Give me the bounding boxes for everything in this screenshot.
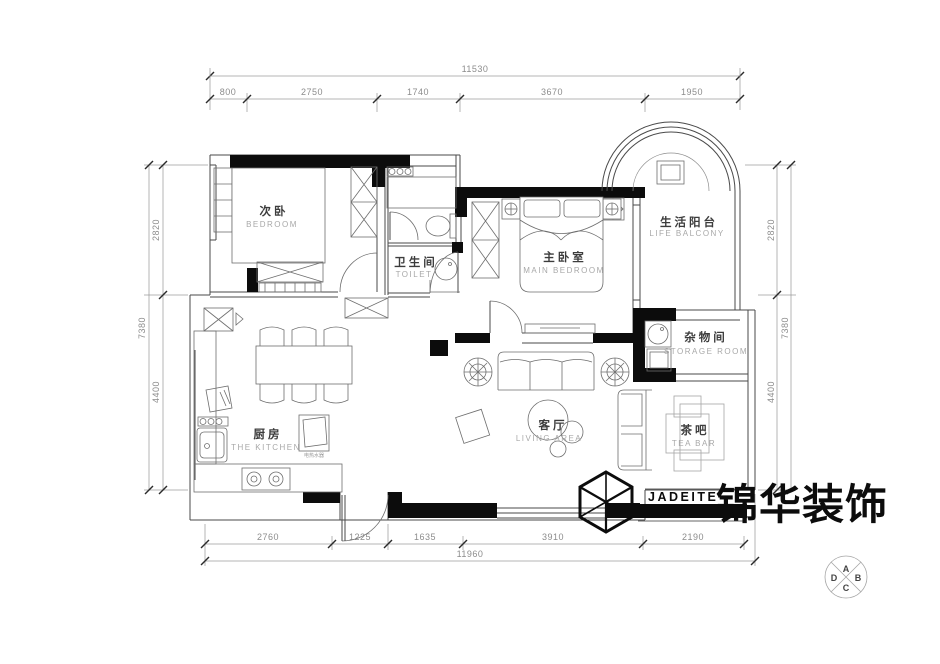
washing-machine xyxy=(645,321,671,347)
label-bedroom-zh: 次卧 xyxy=(260,204,289,218)
main-bed xyxy=(520,197,603,292)
main-bedroom-furniture xyxy=(472,197,621,333)
dim-bottom-seg: 2190 xyxy=(682,532,704,542)
shower-area xyxy=(387,177,456,208)
side-table xyxy=(456,409,490,443)
dim-top-seg: 2750 xyxy=(301,87,323,97)
label-kitchen-en: THE KITCHEN xyxy=(231,443,301,452)
bedroom-furniture xyxy=(214,167,377,292)
main-bedroom-door-arc xyxy=(490,301,522,333)
compass: A B C D xyxy=(825,556,867,598)
compass-d: D xyxy=(831,573,838,583)
dim-bottom-seg: 2760 xyxy=(257,532,279,542)
compass-b: B xyxy=(855,573,862,583)
dining-table xyxy=(256,346,352,384)
toilet-door-arc xyxy=(390,212,418,240)
tea-sofa xyxy=(618,390,652,470)
wash-basin xyxy=(435,258,457,280)
dim-bottom-seg: 3910 xyxy=(542,532,564,542)
label-main-bedroom-en: MAIN BEDROOM xyxy=(523,266,605,275)
label-living-zh: 客厅 xyxy=(538,418,568,432)
label-bedroom-en: BEDROOM xyxy=(246,220,298,229)
dim-right-seg: 2820 xyxy=(766,219,776,241)
label-toilet-en: TOILET xyxy=(396,270,433,279)
dim-top-seg: 800 xyxy=(220,87,237,97)
tv-cabinet xyxy=(525,324,595,333)
kitchen-furniture xyxy=(194,298,388,492)
dim-top-overall: 11530 xyxy=(462,64,489,74)
brand-name-zh: 锦华装饰 xyxy=(716,481,888,528)
label-main-bedroom-zh: 主卧室 xyxy=(543,250,587,264)
label-balcony-en: LIFE BALCONY xyxy=(649,229,724,238)
dim-left-seg: 4400 xyxy=(151,381,161,403)
dim-top-seg: 3670 xyxy=(541,87,563,97)
plant xyxy=(601,358,629,386)
dim-left-overall: 7380 xyxy=(137,317,147,339)
dimension-top: 11530 800 2750 1740 3670 1950 xyxy=(206,64,744,112)
compass-a: A xyxy=(843,564,850,574)
label-storage-en: STORAGE ROOM xyxy=(664,347,748,356)
dimension-right: 2820 4400 7380 xyxy=(745,161,796,494)
label-toilet-zh: 卫生间 xyxy=(394,255,438,269)
brand-name-en: JADEITE xyxy=(648,490,718,504)
label-tea-bar-zh: 茶吧 xyxy=(680,423,710,437)
label-tea-bar-en: TEA BAR xyxy=(672,439,716,448)
dim-top-seg: 1950 xyxy=(681,87,703,97)
dim-left-seg: 2820 xyxy=(151,219,161,241)
dim-bottom-overall: 11960 xyxy=(457,549,484,559)
dim-right-seg: 4400 xyxy=(766,381,776,403)
sofa xyxy=(498,352,594,390)
cube-logo-icon xyxy=(580,472,632,532)
brand-logo: JADEITE 锦华装饰 xyxy=(580,472,888,532)
balcony-arch xyxy=(602,122,740,220)
label-balcony-zh: 生活阳台 xyxy=(660,215,718,229)
plant xyxy=(464,358,492,386)
label-living-en: LIVING AREA xyxy=(516,434,582,443)
dim-bottom-seg: 1635 xyxy=(414,532,436,542)
toilet-bowl xyxy=(426,216,450,236)
floorplan-canvas: 11530 800 2750 1740 3670 1950 2760 1225 … xyxy=(0,0,940,664)
living-furniture xyxy=(456,352,652,470)
bedroom-door-arc xyxy=(340,253,377,292)
label-kitchen-zh: 厨房 xyxy=(254,427,283,441)
dim-top-seg: 1740 xyxy=(407,87,429,97)
storage-furniture xyxy=(645,321,671,371)
floorplan-drawing: 11530 800 2750 1740 3670 1950 2760 1225 … xyxy=(0,0,940,664)
dim-right-overall: 7380 xyxy=(780,317,790,339)
label-water-heater: 电热水器 xyxy=(304,452,324,459)
label-storage-zh: 杂物间 xyxy=(684,330,728,344)
compass-c: C xyxy=(843,583,850,593)
